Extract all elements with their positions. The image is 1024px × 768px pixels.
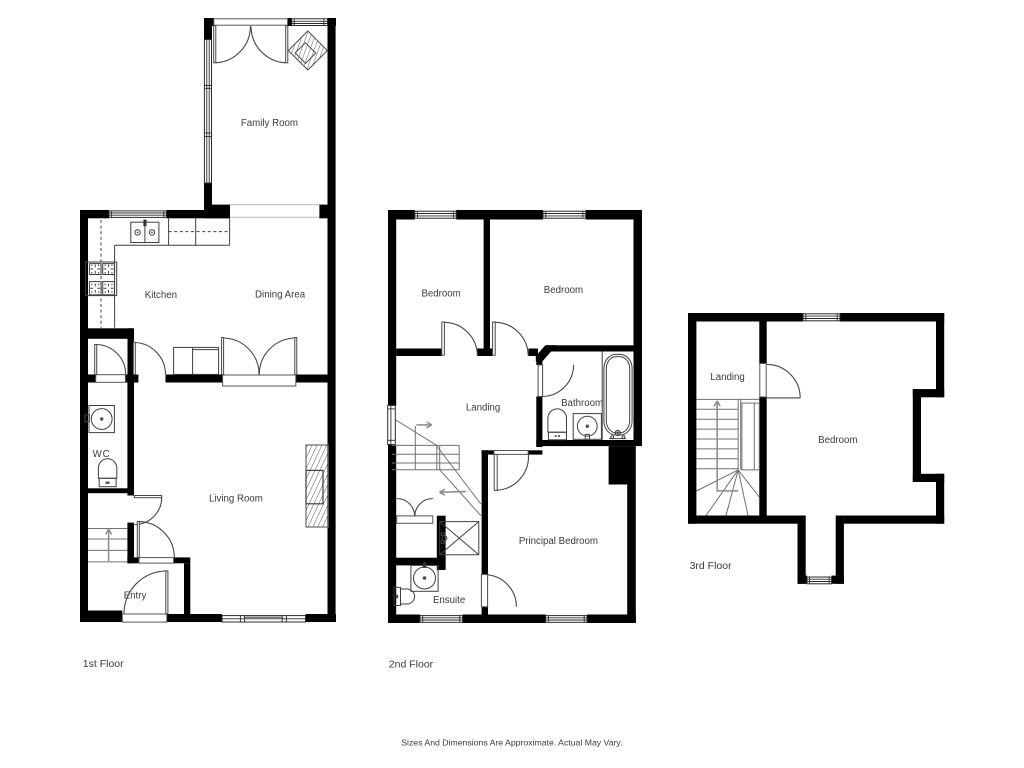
svg-text:Living Room: Living Room (209, 494, 263, 505)
svg-text:Bedroom: Bedroom (421, 289, 460, 300)
svg-text:Ensuite: Ensuite (433, 595, 465, 606)
svg-text:3rd Floor: 3rd Floor (690, 560, 733, 572)
svg-text:Family Room: Family Room (241, 118, 298, 129)
svg-text:Bedroom: Bedroom (818, 435, 857, 446)
svg-text:Bedroom: Bedroom (544, 285, 583, 296)
svg-text:1st Floor: 1st Floor (83, 658, 124, 670)
svg-text:Landing: Landing (710, 372, 744, 383)
svg-text:Landing: Landing (466, 403, 500, 414)
svg-text:Entry: Entry (124, 590, 147, 601)
svg-text:Dining Area: Dining Area (255, 290, 306, 301)
svg-text:Kitchen: Kitchen (145, 290, 177, 301)
svg-text:2nd Floor: 2nd Floor (389, 659, 434, 671)
svg-text:Sizes And Dimensions Are Appro: Sizes And Dimensions Are Approximate. Ac… (401, 737, 622, 747)
svg-text:WC: WC (93, 449, 111, 460)
svg-text:Bathroom: Bathroom (561, 398, 603, 409)
svg-text:Principal Bedroom: Principal Bedroom (519, 536, 598, 547)
